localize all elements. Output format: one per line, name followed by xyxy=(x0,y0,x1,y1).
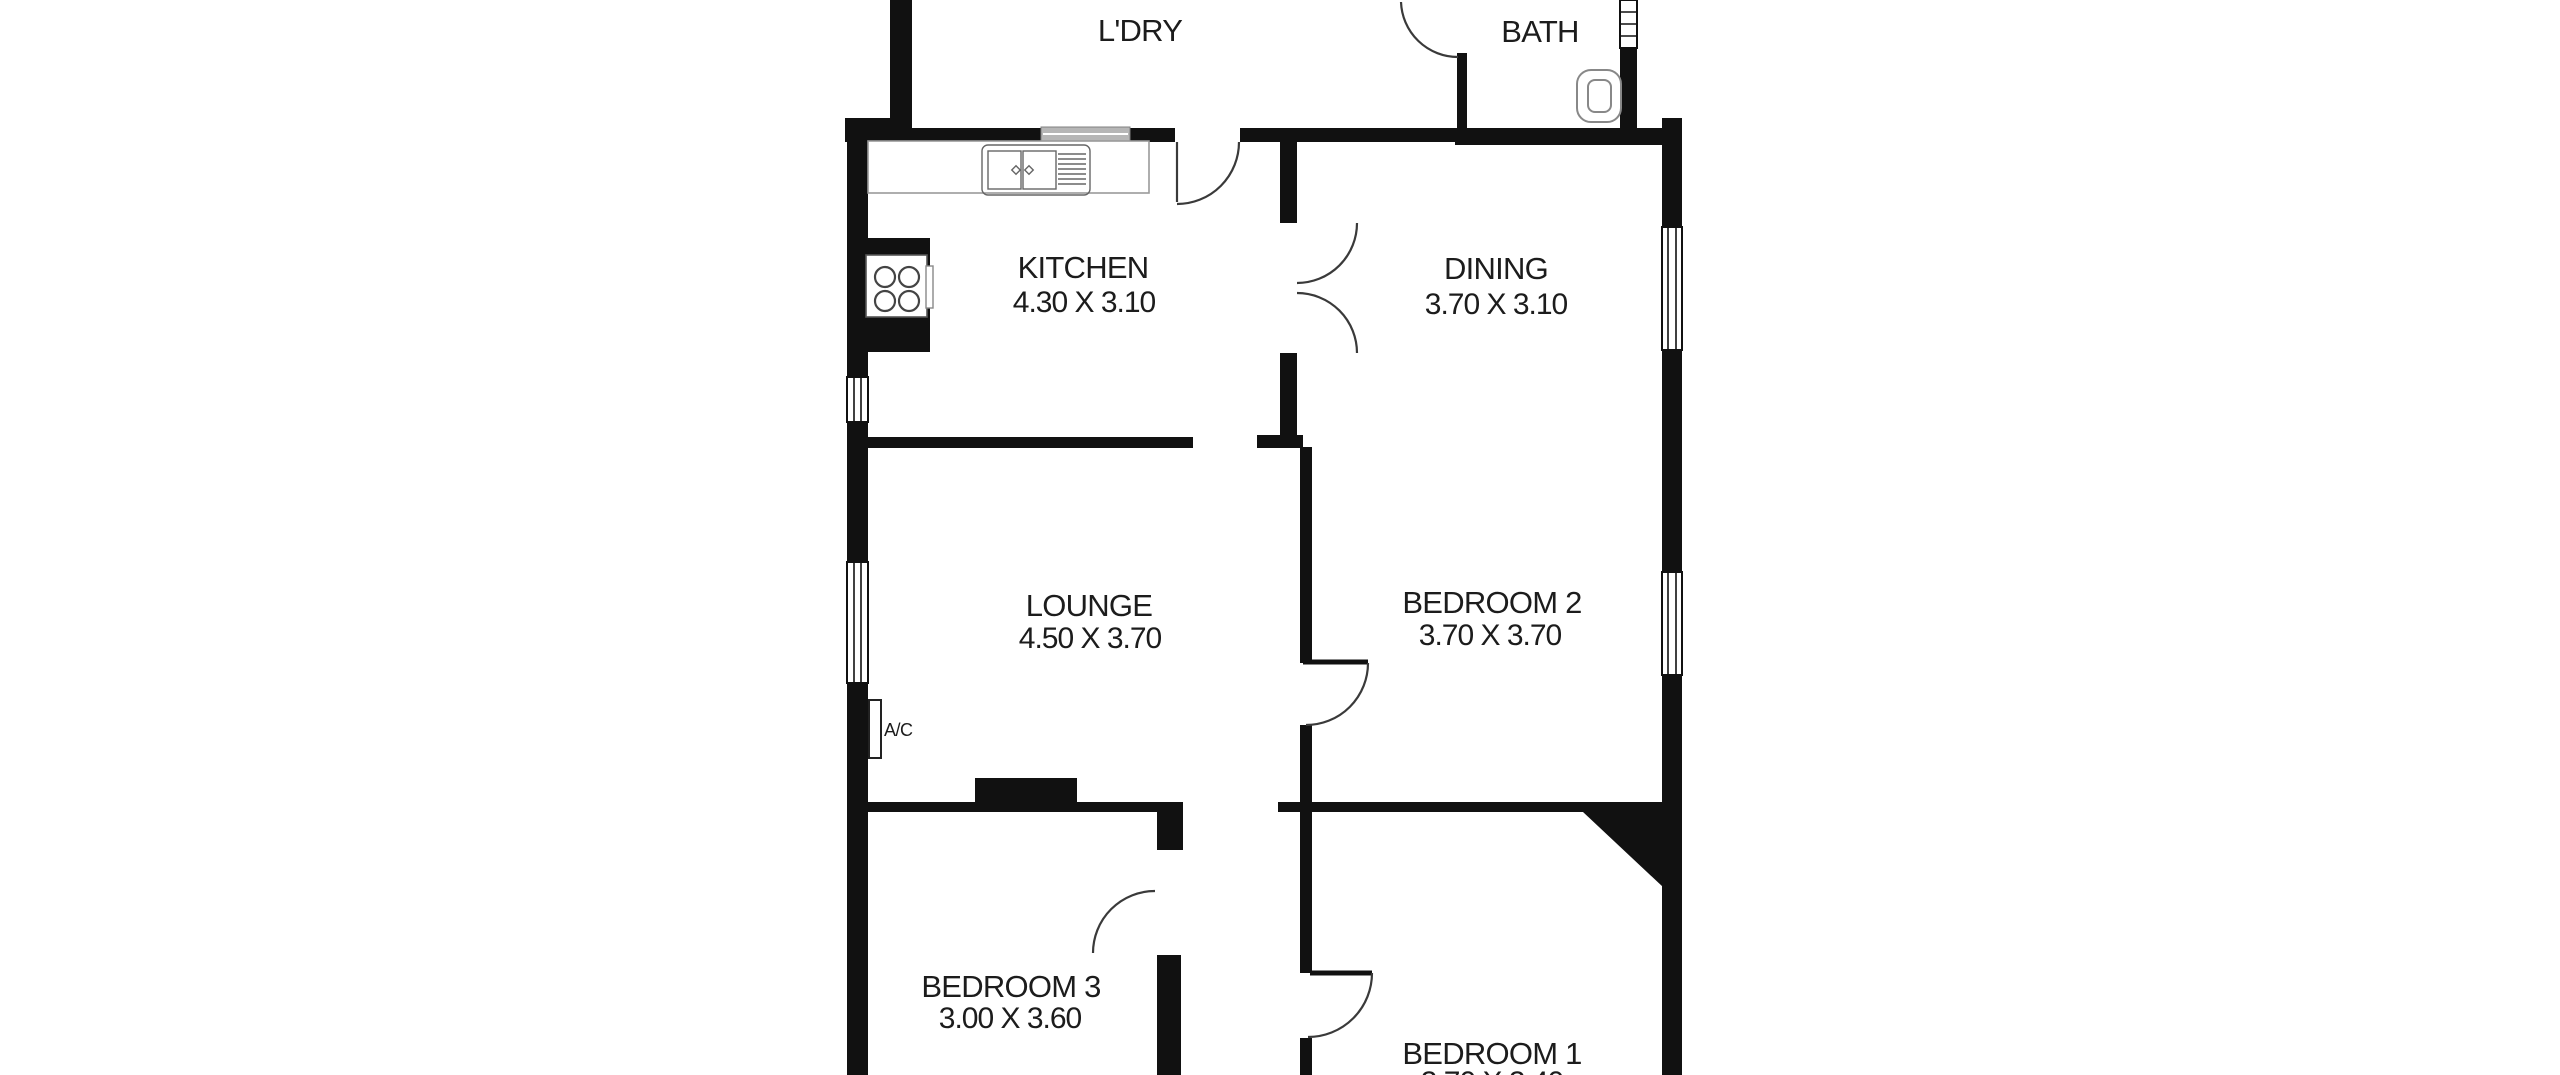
wall-segment xyxy=(1300,447,1312,663)
ac-unit xyxy=(869,700,881,758)
bath-window xyxy=(1620,0,1637,48)
room-label-bedroom2: BEDROOM 2 xyxy=(1402,585,1581,620)
wall-segment xyxy=(1257,435,1303,448)
dining-double-doors xyxy=(1297,223,1357,353)
wall-segment xyxy=(890,0,912,130)
kitchen-hatch-window xyxy=(1041,127,1130,141)
fireplace-block xyxy=(975,778,1077,802)
wall-segment xyxy=(1662,675,1682,1075)
wall-segment xyxy=(1662,118,1682,227)
wall-segment xyxy=(1278,802,1682,812)
wall-segment xyxy=(1300,812,1312,973)
room-dims-bedroom2: 3.70 X 3.70 xyxy=(1419,619,1562,652)
floor-plan-page: L'DRY BATH KITCHEN 4.30 X 3.10 DINING 3.… xyxy=(0,0,2560,1075)
kitchen-window xyxy=(847,377,868,422)
wall-segment xyxy=(1457,53,1467,130)
room-label-kitchen: KITCHEN xyxy=(1018,250,1149,285)
room-label-lounge: LOUNGE xyxy=(1026,588,1152,623)
room-label-dining: DINING xyxy=(1444,251,1548,286)
bedroom3-door xyxy=(1093,891,1155,953)
bedroom2-window xyxy=(1662,572,1682,675)
room-dims-bedroom3: 3.00 X 3.60 xyxy=(939,1002,1082,1035)
chamfer-corner xyxy=(1583,812,1663,887)
laundry-kitchen-door xyxy=(1177,142,1239,204)
wall-segment xyxy=(1300,725,1312,802)
ac-label: A/C xyxy=(884,720,913,740)
bedroom2-door xyxy=(1303,662,1368,725)
wall-segment xyxy=(1280,353,1297,447)
lounge-window xyxy=(847,562,868,683)
windows xyxy=(847,0,1682,683)
room-dims-lounge: 4.50 X 3.70 xyxy=(1019,622,1162,655)
bath-door xyxy=(1401,2,1458,57)
wall-segment xyxy=(1300,1038,1312,1075)
wall-segment xyxy=(868,437,1193,448)
bedroom1-door xyxy=(1308,973,1372,1037)
toilet xyxy=(1577,70,1621,122)
room-dims-kitchen: 4.30 X 3.10 xyxy=(1013,286,1156,319)
wall-segment xyxy=(1455,128,1682,145)
wall-segment xyxy=(1157,955,1181,1075)
wall-segment xyxy=(868,802,1157,812)
room-dims-bedroom1: 3.70 X 3.40 xyxy=(1421,1066,1564,1075)
room-dims-dining: 3.70 X 3.10 xyxy=(1425,288,1568,321)
wall-segment xyxy=(1280,142,1297,223)
room-label-bedroom3: BEDROOM 3 xyxy=(921,969,1100,1004)
wall-segment xyxy=(1620,48,1637,128)
sink-drainer xyxy=(1058,154,1086,184)
dining-window xyxy=(1662,227,1682,350)
wall-segment xyxy=(1157,802,1183,850)
stove-handle xyxy=(926,266,933,308)
fixtures xyxy=(866,70,1621,758)
stove xyxy=(866,255,933,317)
room-label-laundry: L'DRY xyxy=(1098,13,1182,48)
wall-segment xyxy=(1662,350,1682,572)
wall-segment xyxy=(847,422,868,562)
wall-segment xyxy=(1240,128,1457,142)
room-label-bath: BATH xyxy=(1501,14,1578,49)
floor-plan-drawing: L'DRY BATH KITCHEN 4.30 X 3.10 DINING 3.… xyxy=(0,0,2560,1075)
wall-segment xyxy=(847,683,868,1075)
kitchen-counter xyxy=(868,141,1149,193)
